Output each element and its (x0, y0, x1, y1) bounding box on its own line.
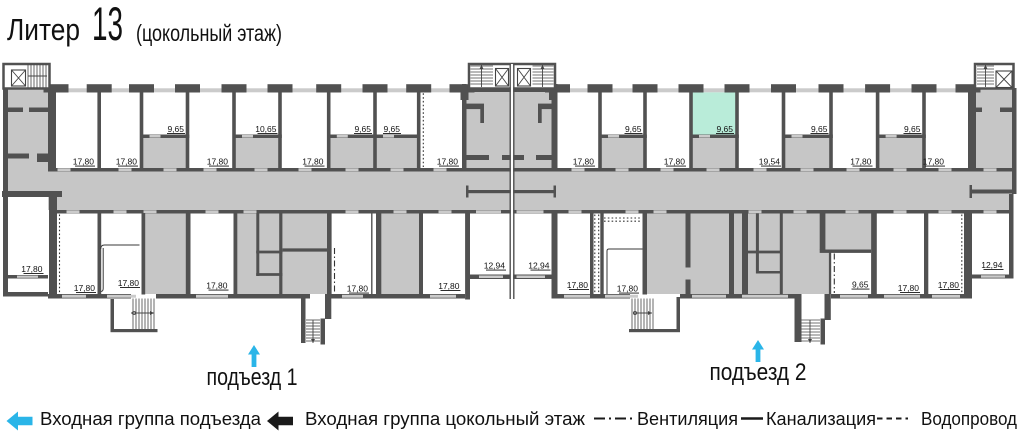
svg-text:Входная группа цокольный этаж: Входная группа цокольный этаж (305, 409, 585, 429)
svg-text:(цокольный этаж): (цокольный этаж) (136, 20, 282, 46)
svg-text:9,65: 9,65 (167, 124, 184, 134)
svg-text:17,80: 17,80 (206, 281, 228, 291)
svg-text:Водопровод: Водопровод (921, 409, 1017, 429)
svg-text:17,80: 17,80 (302, 157, 324, 167)
svg-text:9,65: 9,65 (716, 124, 733, 134)
svg-text:19,54: 19,54 (759, 157, 781, 167)
svg-text:9,65: 9,65 (811, 124, 828, 134)
svg-text:9,65: 9,65 (904, 124, 921, 134)
svg-text:10,65: 10,65 (255, 124, 277, 134)
svg-text:17,80: 17,80 (938, 280, 960, 290)
svg-text:17,80: 17,80 (850, 157, 872, 167)
svg-text:12,94: 12,94 (981, 260, 1003, 270)
svg-text:17,80: 17,80 (437, 157, 459, 167)
svg-text:17,80: 17,80 (923, 157, 945, 167)
svg-text:17,80: 17,80 (664, 157, 686, 167)
svg-text:9,65: 9,65 (852, 280, 869, 290)
svg-text:12,94: 12,94 (528, 261, 550, 271)
svg-text:12,94: 12,94 (484, 261, 506, 271)
svg-text:17,80: 17,80 (73, 157, 95, 167)
svg-text:17,80: 17,80 (617, 284, 639, 294)
svg-text:13: 13 (92, 0, 123, 50)
svg-text:Вентиляция: Вентиляция (637, 409, 738, 429)
svg-text:9,65: 9,65 (625, 124, 642, 134)
svg-text:Входная группа подъезда: Входная группа подъезда (40, 409, 262, 429)
svg-text:17,80: 17,80 (898, 283, 920, 293)
svg-text:подъезд 1: подъезд 1 (207, 364, 298, 391)
svg-text:9,65: 9,65 (354, 124, 371, 134)
svg-text:17,80: 17,80 (347, 284, 369, 294)
svg-text:17,80: 17,80 (21, 264, 43, 274)
svg-text:17,80: 17,80 (438, 281, 460, 291)
svg-text:9,65: 9,65 (383, 124, 400, 134)
svg-text:17,80: 17,80 (567, 280, 589, 290)
svg-text:17,80: 17,80 (116, 157, 138, 167)
svg-text:Литер: Литер (7, 12, 80, 47)
svg-text:17,80: 17,80 (207, 157, 229, 167)
svg-text:подъезд 2: подъезд 2 (710, 359, 807, 386)
svg-text:17,80: 17,80 (118, 278, 140, 288)
svg-text:17,80: 17,80 (573, 157, 595, 167)
svg-text:17,80: 17,80 (74, 283, 96, 293)
svg-text:Канализация: Канализация (766, 409, 876, 429)
